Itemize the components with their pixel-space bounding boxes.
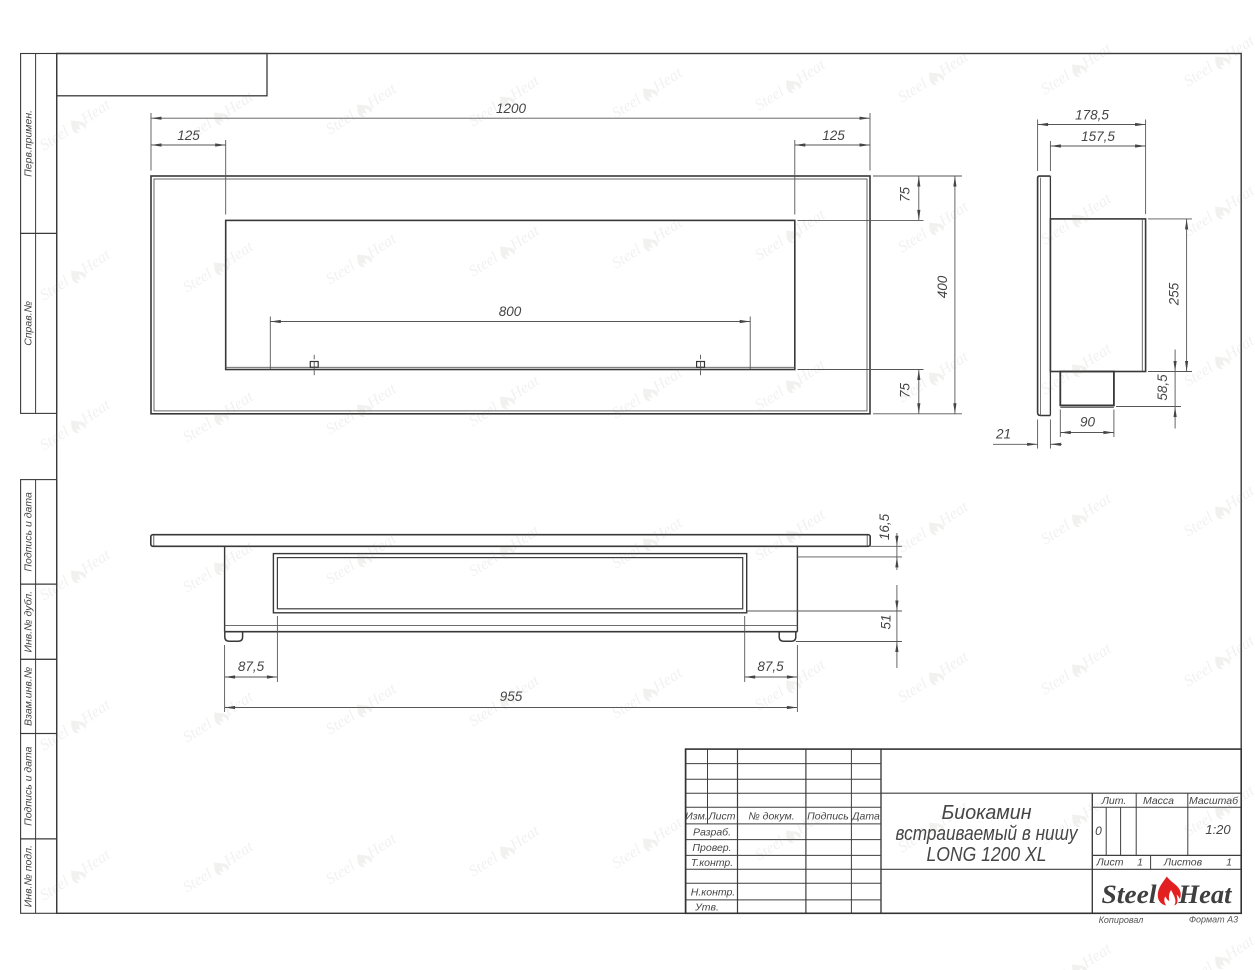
- svg-text:Копировал: Копировал: [1099, 915, 1144, 925]
- svg-text:21: 21: [995, 427, 1011, 442]
- svg-text:Лист: Лист: [1095, 857, 1123, 869]
- svg-text:255: 255: [1167, 282, 1182, 306]
- svg-text:58,5: 58,5: [1155, 374, 1170, 401]
- svg-text:Перв.примен.: Перв.примен.: [23, 110, 35, 177]
- svg-text:№ докум.: № докум.: [748, 811, 794, 823]
- svg-text:Steel: Steel: [1102, 880, 1158, 909]
- svg-text:Разраб.: Разраб.: [693, 827, 731, 839]
- svg-text:1: 1: [1226, 857, 1232, 869]
- svg-text:Изм.: Изм.: [685, 811, 707, 823]
- svg-text:LONG 1200 XL: LONG 1200 XL: [927, 844, 1047, 866]
- svg-text:Инв.№ дубл.: Инв.№ дубл.: [23, 591, 35, 653]
- svg-text:800: 800: [499, 304, 522, 319]
- svg-text:75: 75: [898, 187, 913, 203]
- svg-text:Масса: Масса: [1143, 795, 1174, 807]
- svg-text:16,5: 16,5: [877, 513, 892, 540]
- svg-text:Подпись и дата: Подпись и дата: [23, 492, 35, 572]
- svg-text:Взам.инв.№: Взам.инв.№: [23, 667, 35, 726]
- svg-text:Инв.№ подл.: Инв.№ подл.: [23, 845, 35, 907]
- svg-text:Утв.: Утв.: [694, 901, 719, 913]
- svg-text:87,5: 87,5: [238, 659, 265, 674]
- svg-text:Провер.: Провер.: [692, 842, 731, 854]
- svg-text:1200: 1200: [496, 101, 527, 116]
- svg-text:87,5: 87,5: [757, 659, 784, 674]
- svg-text:1: 1: [1137, 857, 1143, 869]
- svg-text:400: 400: [935, 275, 950, 298]
- svg-text:178,5: 178,5: [1075, 108, 1109, 123]
- svg-text:Листов: Листов: [1163, 857, 1203, 869]
- svg-text:125: 125: [822, 128, 845, 143]
- svg-text:Дата: Дата: [851, 811, 880, 823]
- svg-text:Формат А3: Формат А3: [1189, 915, 1238, 925]
- svg-text:90: 90: [1080, 415, 1096, 430]
- svg-text:Н.контр.: Н.контр.: [691, 886, 735, 898]
- svg-text:51: 51: [879, 614, 894, 629]
- svg-text:Справ.№: Справ.№: [23, 301, 35, 346]
- svg-text:157,5: 157,5: [1081, 129, 1115, 144]
- svg-text:0: 0: [1095, 824, 1102, 838]
- svg-text:Подпись и дата: Подпись и дата: [23, 746, 35, 826]
- svg-text:Т.контр.: Т.контр.: [691, 857, 733, 869]
- svg-text:Heat: Heat: [1177, 880, 1232, 909]
- svg-text:Лист: Лист: [707, 811, 735, 823]
